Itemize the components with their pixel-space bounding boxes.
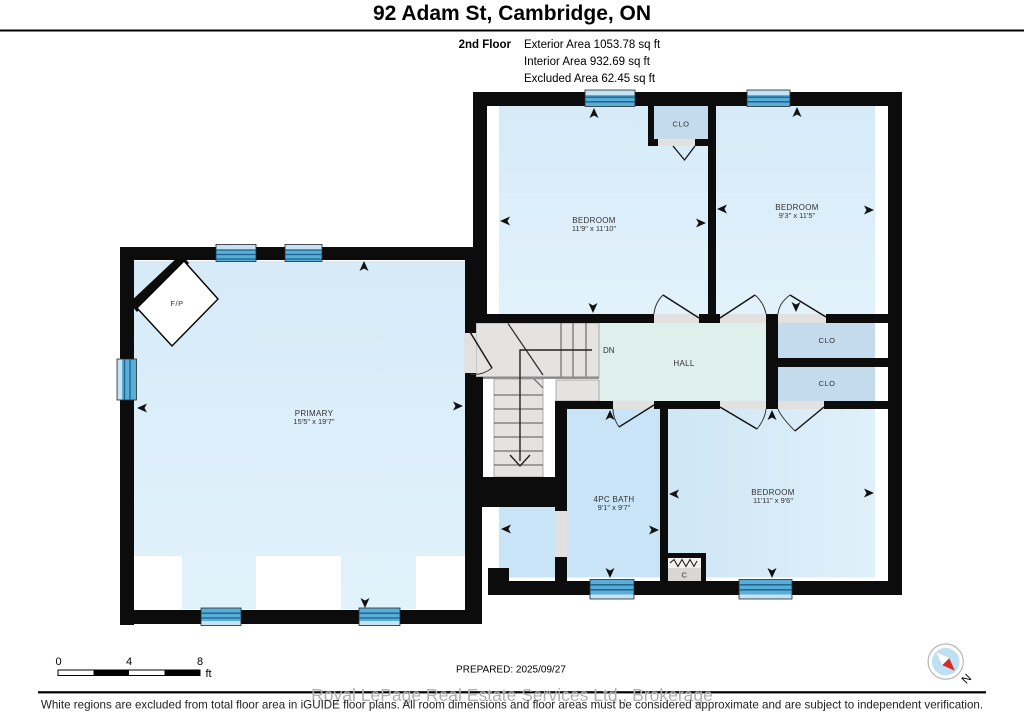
svg-text:F/P: F/P [170,299,183,308]
svg-text:CLO: CLO [673,120,690,129]
svg-text:DN: DN [603,346,615,355]
svg-text:C: C [682,571,688,580]
svg-text:White regions are excluded fro: White regions are excluded from total fl… [41,699,983,712]
svg-text:11'11" x 9'6": 11'11" x 9'6" [753,496,793,505]
svg-text:9'3" x 11'5": 9'3" x 11'5" [779,211,816,220]
svg-text:CLO: CLO [819,336,836,345]
svg-text:2nd Floor: 2nd Floor [459,39,512,51]
svg-text:Interior Area 932.69 sq ft: Interior Area 932.69 sq ft [524,56,651,68]
svg-text:4: 4 [126,656,132,668]
svg-text:15'5" x 19'7": 15'5" x 19'7" [293,417,334,426]
svg-text:11'9" x 11'10": 11'9" x 11'10" [572,224,617,233]
svg-text:8: 8 [197,656,203,668]
svg-text:9'1" x 9'7": 9'1" x 9'7" [598,503,631,512]
svg-text:92 Adam St, Cambridge, ON: 92 Adam St, Cambridge, ON [373,2,651,25]
svg-text:PREPARED: 2025/09/27: PREPARED: 2025/09/27 [456,665,566,676]
svg-text:Exterior Area 1053.78 sq ft: Exterior Area 1053.78 sq ft [524,39,661,51]
svg-text:Excluded Area 62.45 sq ft: Excluded Area 62.45 sq ft [524,73,656,85]
svg-text:HALL: HALL [673,359,694,368]
svg-text:ft: ft [206,668,212,680]
svg-text:CLO: CLO [819,379,836,388]
svg-text:0: 0 [55,656,61,668]
